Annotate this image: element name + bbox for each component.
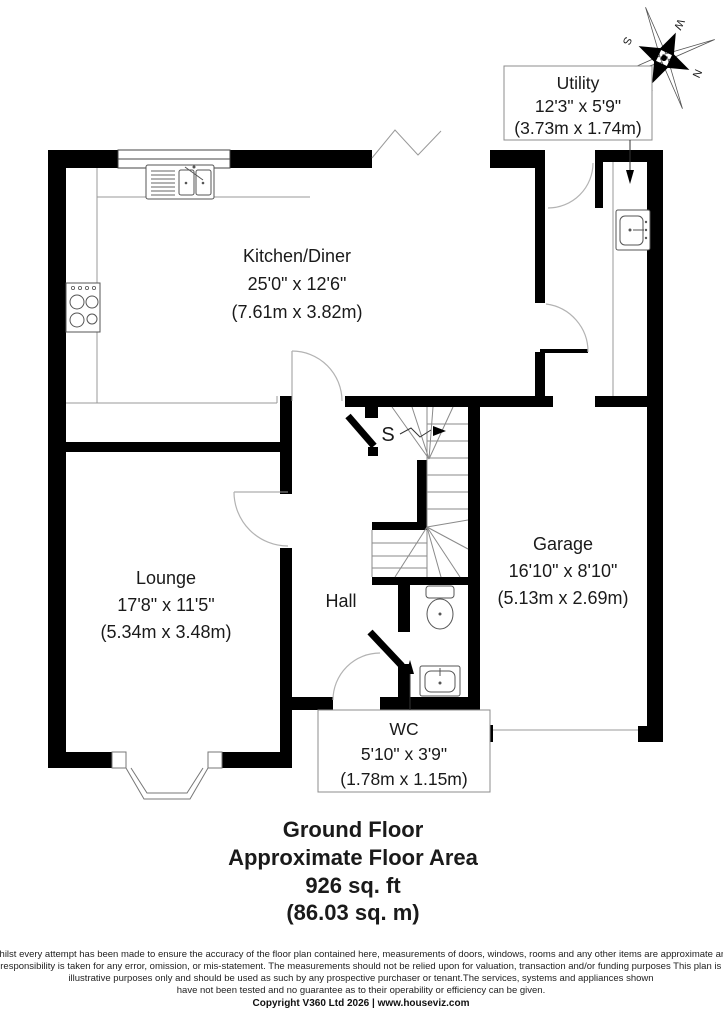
hall-label: Hall: [325, 591, 356, 611]
wall-break-zigzag: [372, 130, 441, 158]
compass-s: S: [620, 35, 634, 47]
wc-dims-metric: (1.78m x 1.15m): [340, 769, 467, 789]
floor-area-imperial: 926 sq. ft: [305, 873, 401, 898]
toilet-icon: [426, 586, 454, 629]
utility-name: Utility: [557, 73, 600, 93]
stairs-s-label: S: [381, 424, 394, 446]
utility-dims-imperial: 12'3" x 5'9": [535, 96, 621, 116]
windows: [112, 150, 230, 799]
utility-dims-metric: (3.73m x 1.74m): [514, 118, 641, 138]
disclaimer-line-2: no responsibility is taken for any error…: [0, 961, 723, 972]
stairs-door-leaf: [348, 416, 374, 446]
disclaimer-line-3: illustrative purposes only and should be…: [68, 973, 653, 984]
kitchen-label: Kitchen/Diner 25'0" x 12'6" (7.61m x 3.8…: [231, 246, 362, 322]
wc-door-leaf: [370, 632, 402, 666]
garage-dims-metric: (5.13m x 2.69m): [497, 588, 628, 608]
kitchen-dims-metric: (7.61m x 3.82m): [231, 302, 362, 322]
kitchen-dims-imperial: 25'0" x 12'6": [248, 274, 347, 294]
walls: [48, 150, 663, 768]
copyright-line: Copyright V360 Ltd 2026 | www.houseviz.c…: [253, 998, 470, 1009]
floor-summary: Ground Floor Approximate Floor Area 926 …: [228, 817, 479, 925]
floor-name: Ground Floor: [283, 817, 424, 842]
garage-dims-imperial: 16'10" x 8'10": [509, 561, 618, 581]
front-door-arc: [333, 653, 380, 700]
disclaimer-line-4: have not been tested and no guarantee as…: [177, 985, 545, 996]
utility-entry-door-arc: [548, 163, 593, 208]
floor-plan-canvas: N E S W Kitchen/Diner 25'0" x 12'6" (7.6…: [0, 0, 723, 1024]
wc-dims-imperial: 5'10" x 3'9": [361, 744, 447, 764]
floor-area-metric: (86.03 sq. m): [286, 900, 419, 925]
kitchen-sink-icon: [146, 165, 214, 199]
wc-name: WC: [389, 719, 418, 739]
hob-icon: [66, 283, 100, 332]
floor-area-label: Approximate Floor Area: [228, 845, 479, 870]
garage-label: Garage 16'10" x 8'10" (5.13m x 2.69m): [497, 534, 628, 608]
lounge-door-arc: [234, 492, 288, 546]
lounge-dims-imperial: 17'8" x 11'5": [117, 595, 214, 615]
kitchen-hall-door-arc: [292, 351, 342, 401]
disclaimer: Whilst every attempt has been made to en…: [0, 949, 723, 1009]
lounge-dims-metric: (5.34m x 3.48m): [100, 622, 231, 642]
wc-basin-icon: [420, 666, 460, 696]
kitchen-utility-door-arc: [546, 304, 588, 352]
kitchen-name: Kitchen/Diner: [243, 246, 351, 266]
lounge-name: Lounge: [136, 568, 196, 588]
floorplan-page: N E S W Kitchen/Diner 25'0" x 12'6" (7.6…: [0, 0, 723, 1024]
utility-sink-icon: [616, 210, 650, 250]
compass-w: W: [671, 17, 687, 32]
garage-name: Garage: [533, 534, 593, 554]
lounge-label: Lounge 17'8" x 11'5" (5.34m x 3.48m): [100, 568, 231, 642]
disclaimer-line-1: Whilst every attempt has been made to en…: [0, 949, 723, 960]
bay-window: [112, 752, 222, 799]
compass-n: N: [689, 67, 703, 79]
